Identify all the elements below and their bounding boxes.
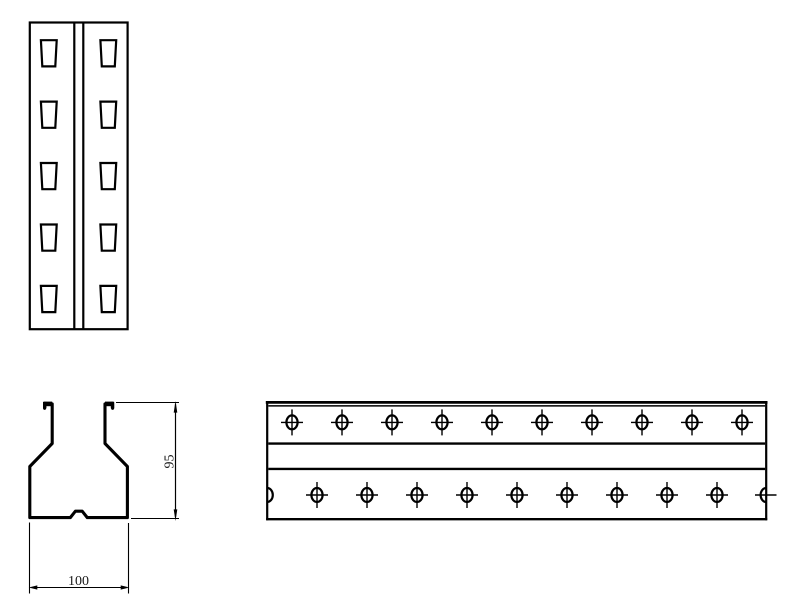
svg-text:100: 100	[68, 574, 89, 589]
svg-text:95: 95	[163, 455, 178, 469]
